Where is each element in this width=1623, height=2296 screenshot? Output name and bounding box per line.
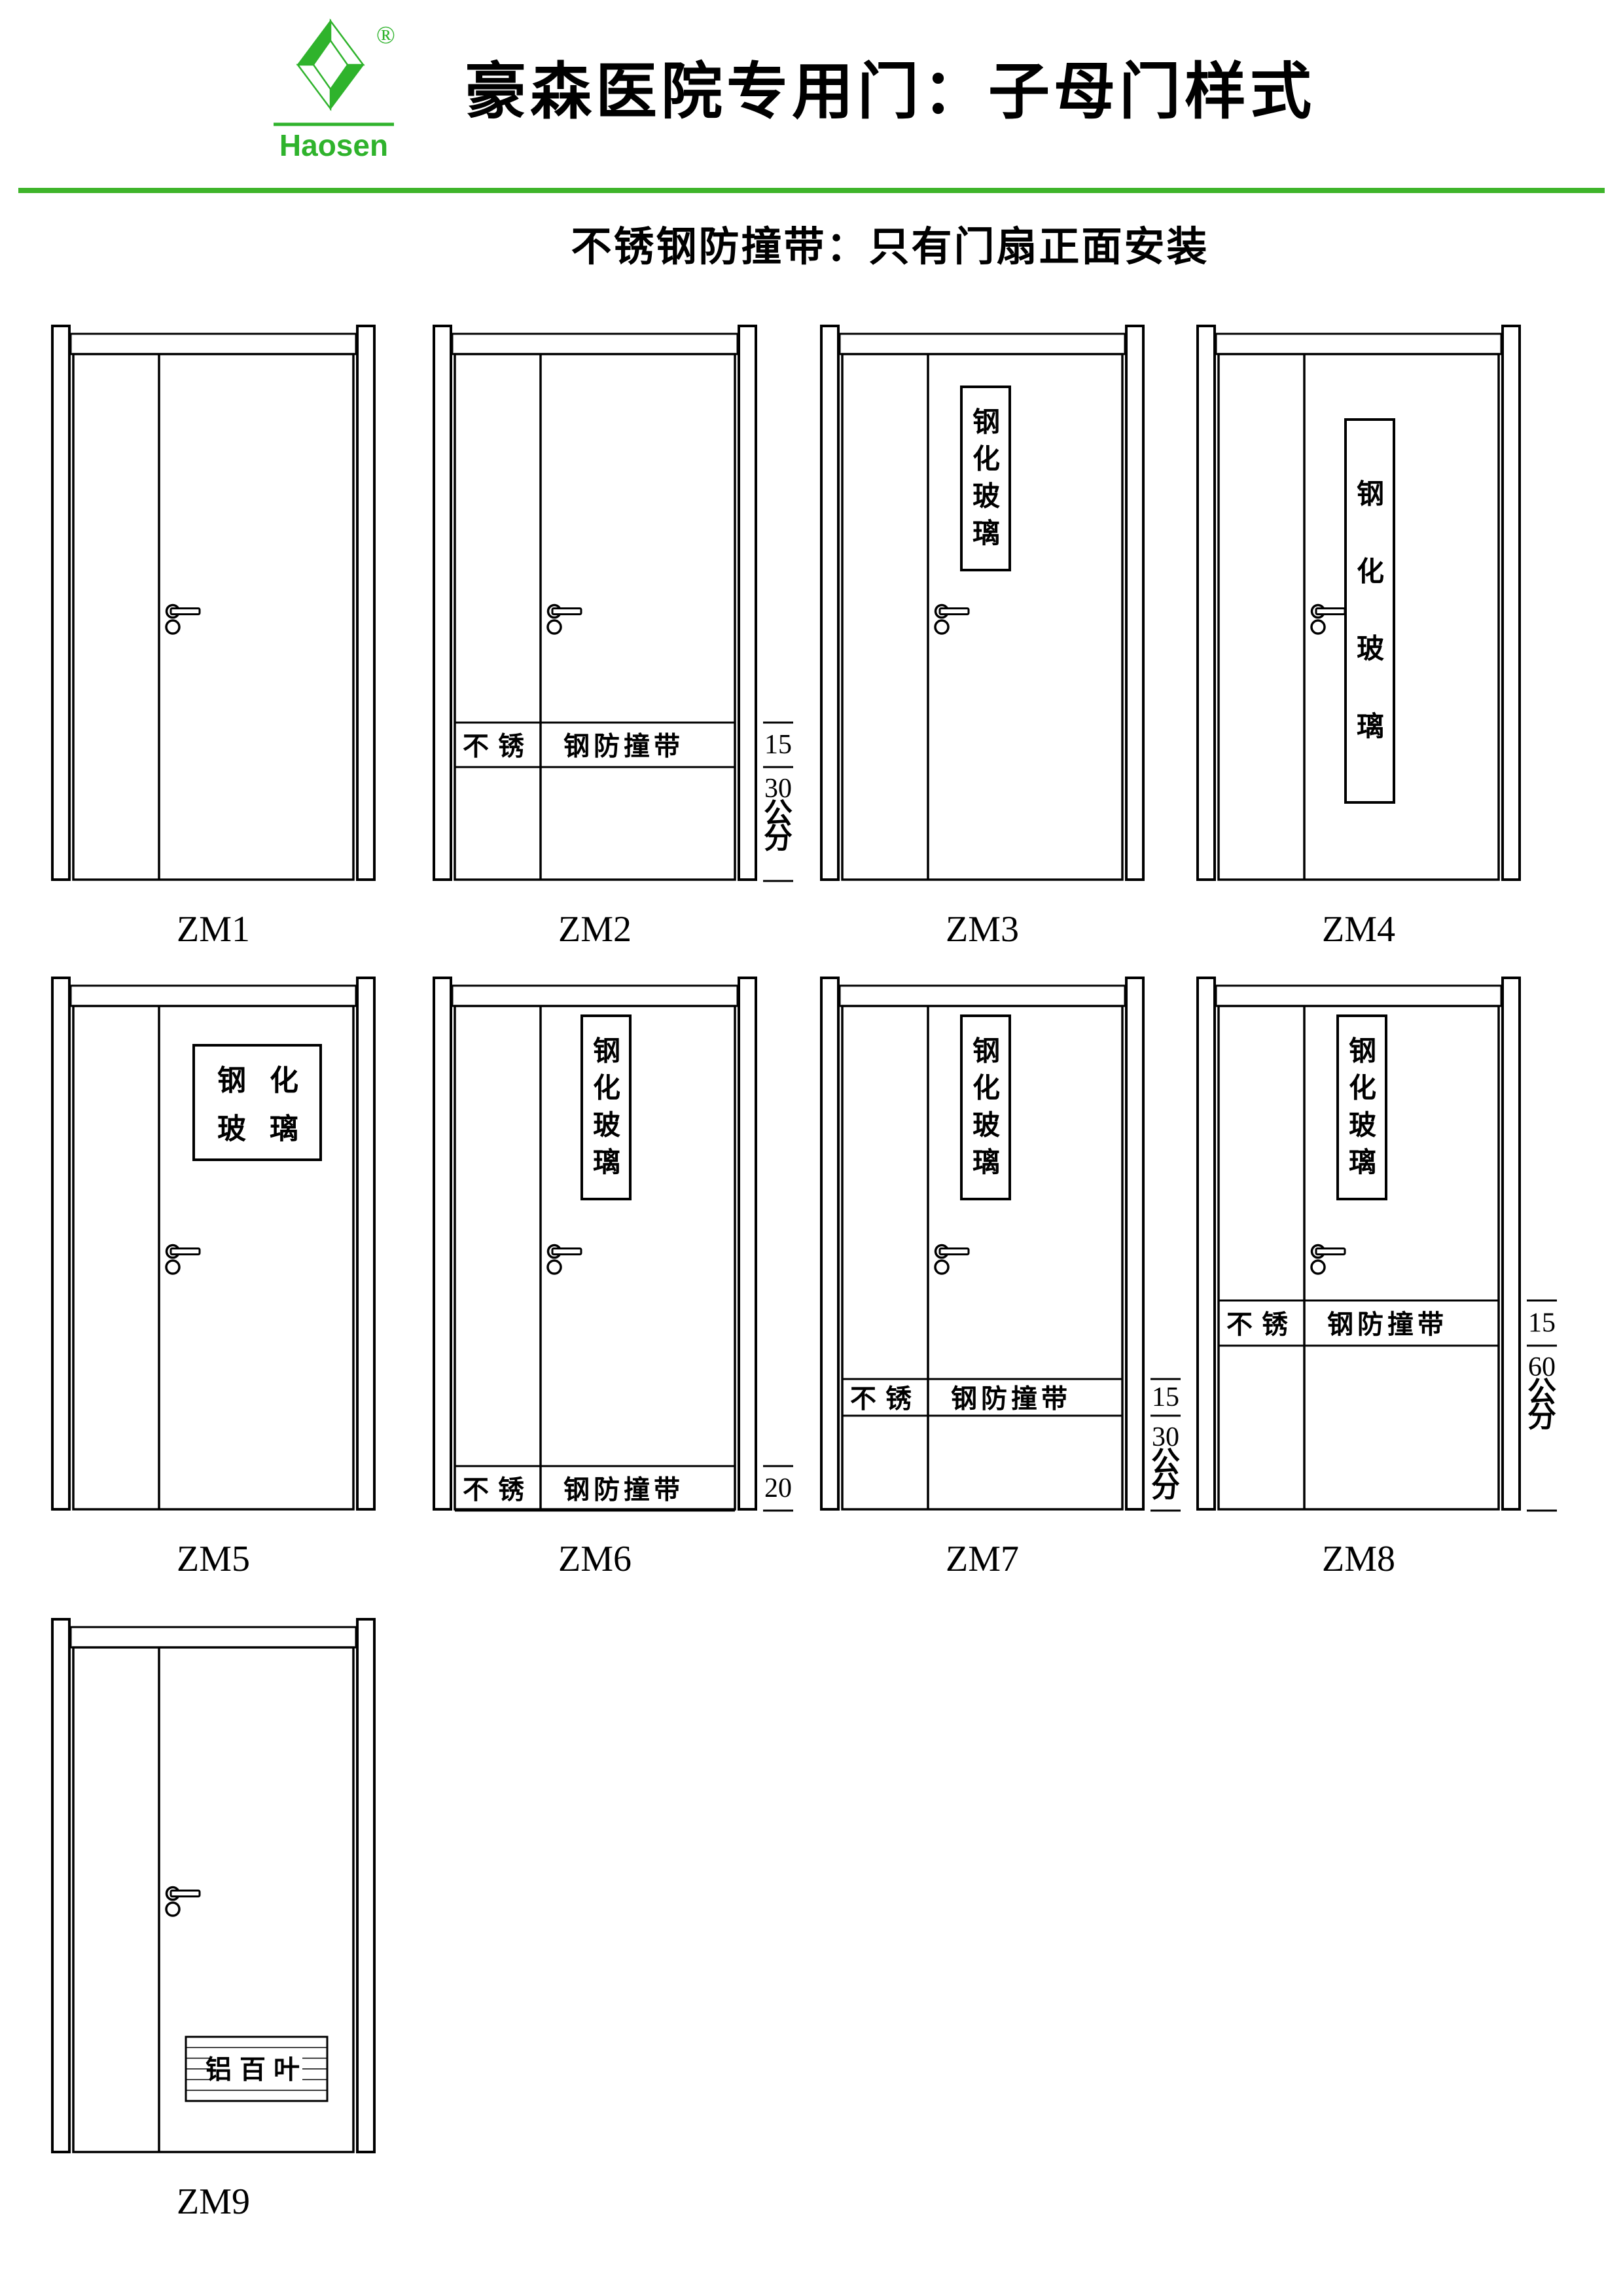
door-post-left: [52, 326, 69, 880]
glass-panel-label: 玻: [972, 481, 1000, 512]
dim-label-lower: 分: [1151, 1471, 1180, 1503]
door-diagram-zm9: 铝百叶: [48, 1615, 428, 2157]
dim-label-lower: 分: [764, 823, 793, 855]
door-handle-escutcheon: [935, 1261, 948, 1274]
door-post-left: [52, 1619, 69, 2152]
glass-panel-label: 玻: [1349, 1110, 1376, 1141]
dim-label-upper: 15: [1152, 1382, 1179, 1412]
glass-panel-label: 玻: [593, 1110, 620, 1141]
glass-panel-label: 玻: [1357, 634, 1384, 665]
glass-panel-label: 玻: [972, 1110, 1000, 1141]
door-lintel: [71, 986, 356, 1006]
door-lintel: [840, 334, 1125, 354]
door-post-left: [434, 326, 451, 880]
door-handle-escutcheon: [1311, 620, 1325, 634]
door-handle-lever: [171, 609, 200, 615]
page-subtitle: 不锈钢防撞带：只有门扇正面安装: [157, 213, 1623, 272]
door-post-right: [1503, 978, 1520, 1509]
glass-panel-label: 璃: [270, 1113, 298, 1145]
glass-panel-label: 化: [270, 1065, 298, 1097]
door-post-left: [1198, 978, 1215, 1509]
glass-panel-label: 钢: [217, 1065, 246, 1097]
door-post-left: [434, 978, 451, 1509]
glass-panel-label: 璃: [593, 1147, 620, 1178]
door-label-zm7: ZM7: [820, 1538, 1145, 1580]
door-diagram-zm1: [48, 322, 428, 885]
glass-panel-label: 璃: [972, 518, 1000, 549]
door-label-zm5: ZM5: [51, 1538, 376, 1580]
door-diagram-zm4: 钢化玻璃: [1194, 322, 1573, 885]
door-diagram-zm3: 钢化玻璃: [817, 322, 1197, 885]
door-handle-escutcheon: [548, 1261, 561, 1274]
door-diagram-zm8: 钢化玻璃不锈钢防撞带1560公分: [1194, 974, 1573, 1515]
glass-panel-label: 钢: [972, 407, 1000, 438]
door-post-right: [1126, 978, 1143, 1509]
glass-panel-label: 玻: [217, 1113, 246, 1145]
glass-panel-label: 钢: [1349, 1036, 1376, 1067]
door-post-right: [739, 978, 756, 1509]
glass-panel-label: 钢: [972, 1036, 1000, 1067]
door-leaves: [455, 354, 735, 880]
glass-panel-label: 璃: [1349, 1147, 1376, 1178]
door-lintel: [452, 986, 738, 1006]
glass-panel-label: 钢: [593, 1036, 620, 1067]
door-label-zm2: ZM2: [433, 908, 757, 950]
door-handle-escutcheon: [166, 620, 179, 634]
door-lintel: [840, 986, 1125, 1006]
page-title: 豪森医院专用门：子母门样式: [157, 42, 1623, 131]
door-post-left: [821, 326, 838, 880]
header-divider-line: [18, 188, 1605, 193]
door-handle-escutcheon: [166, 1903, 179, 1916]
door-label-zm8: ZM8: [1196, 1538, 1521, 1580]
door-post-right: [1503, 326, 1520, 880]
glass-panel: [1346, 420, 1394, 802]
door-handle-escutcheon: [935, 620, 948, 634]
door-lintel: [1216, 986, 1501, 1006]
door-handle-lever: [940, 609, 969, 615]
door-lintel: [1216, 334, 1501, 354]
catalog-page: ® Haosen 豪森医院专用门：子母门样式 不锈钢防撞带：只有门扇正面安装 Z…: [0, 0, 1623, 2296]
door-handle-lever: [552, 1249, 581, 1255]
impact-band-label-right: 钢防撞带: [563, 1475, 684, 1505]
door-label-zm3: ZM3: [820, 908, 1145, 950]
impact-band-label-right: 钢防撞带: [1327, 1310, 1448, 1339]
door-handle-lever: [171, 1249, 200, 1255]
door-label-zm6: ZM6: [433, 1538, 757, 1580]
door-diagram-zm6: 钢化玻璃不锈钢防撞带20: [430, 974, 810, 1515]
door-lintel: [71, 1627, 356, 1647]
door-lintel: [71, 334, 356, 354]
door-diagram-zm7: 钢化玻璃不锈钢防撞带1530公分: [817, 974, 1197, 1515]
glass-panel-label: 化: [593, 1073, 620, 1104]
dim-label-lower: 分: [1527, 1401, 1556, 1433]
door-handle-lever: [552, 609, 581, 615]
louver-label: 铝百叶: [205, 2055, 308, 2085]
glass-panel: [194, 1045, 321, 1160]
door-handle-lever: [1316, 609, 1345, 615]
door-post-right: [357, 326, 374, 880]
glass-panel-label: 化: [1349, 1073, 1376, 1104]
impact-band-label-right: 钢防撞带: [563, 732, 684, 761]
door-handle-escutcheon: [166, 1261, 179, 1274]
door-post-left: [821, 978, 838, 1509]
impact-band-label-left: 不锈: [850, 1384, 921, 1414]
door-diagram-zm5: 钢化玻璃: [48, 974, 428, 1515]
door-handle-escutcheon: [548, 620, 561, 634]
door-post-right: [357, 978, 374, 1509]
door-post-right: [739, 326, 756, 880]
logo-brand-text: Haosen: [279, 128, 388, 162]
door-post-left: [1198, 326, 1215, 880]
door-handle-escutcheon: [1311, 1261, 1325, 1274]
impact-band-label-left: 不锈: [1226, 1310, 1297, 1339]
impact-band-label-left: 不锈: [463, 1475, 533, 1505]
dim-label-upper: 15: [1528, 1308, 1556, 1338]
glass-panel-label: 化: [972, 444, 1000, 475]
door-label-zm4: ZM4: [1196, 908, 1521, 950]
glass-panel-label: 璃: [1357, 711, 1384, 742]
door-post-left: [52, 978, 69, 1509]
dim-label-upper: 20: [764, 1473, 792, 1503]
glass-panel-label: 璃: [972, 1147, 1000, 1178]
door-post-right: [357, 1619, 374, 2152]
glass-panel-label: 化: [972, 1073, 1000, 1104]
dim-label-upper: 15: [764, 730, 792, 760]
door-diagram-zm2: 不锈钢防撞带1530公分: [430, 322, 810, 885]
door-label-zm9: ZM9: [51, 2181, 376, 2223]
glass-panel-label: 化: [1357, 556, 1384, 587]
impact-band-label-right: 钢防撞带: [951, 1384, 1071, 1414]
door-post-right: [1126, 326, 1143, 880]
door-lintel: [452, 334, 738, 354]
door-handle-lever: [171, 1891, 200, 1897]
door-label-zm1: ZM1: [51, 908, 376, 950]
glass-panel-label: 钢: [1357, 479, 1384, 510]
impact-band-label-left: 不锈: [463, 732, 533, 761]
door-handle-lever: [1316, 1249, 1345, 1255]
door-handle-lever: [940, 1249, 969, 1255]
door-leaves: [73, 354, 353, 880]
